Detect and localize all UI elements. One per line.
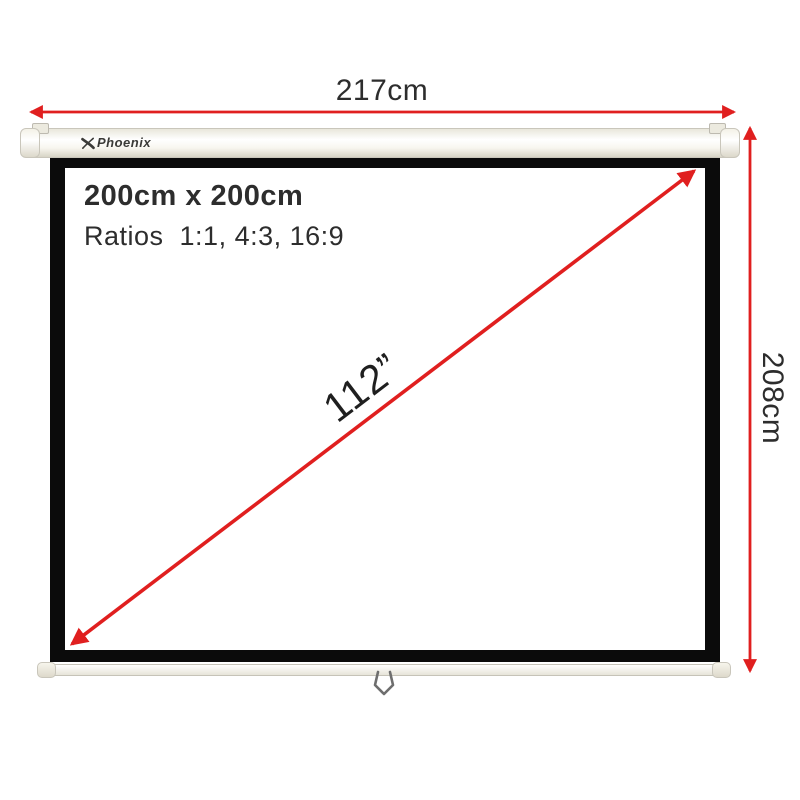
brand-logo: Phoenix — [81, 135, 151, 150]
tube-endcap-left — [20, 128, 40, 158]
screen-size-label: 200cm x 200cm — [84, 180, 303, 213]
slat-endcap-left — [37, 662, 56, 678]
brand-x-icon — [81, 136, 95, 150]
screen-ratios-label: Ratios 1:1, 4:3, 16:9 — [84, 221, 344, 252]
height-dimension-label: 208cm — [755, 352, 789, 445]
roller-tube: Phoenix — [22, 128, 738, 158]
pull-handle — [364, 669, 404, 701]
tube-endcap-right — [720, 128, 740, 158]
screen-frame: 200cm x 200cm Ratios 1:1, 4:3, 16:9 — [50, 153, 720, 662]
brand-name: Phoenix — [97, 135, 151, 150]
width-dimension-label: 217cm — [336, 74, 429, 108]
product-dimension-diagram: 217cm Phoenix 200cm x 200cm Ratios 1:1, … — [0, 0, 800, 800]
slat-endcap-right — [712, 662, 731, 678]
